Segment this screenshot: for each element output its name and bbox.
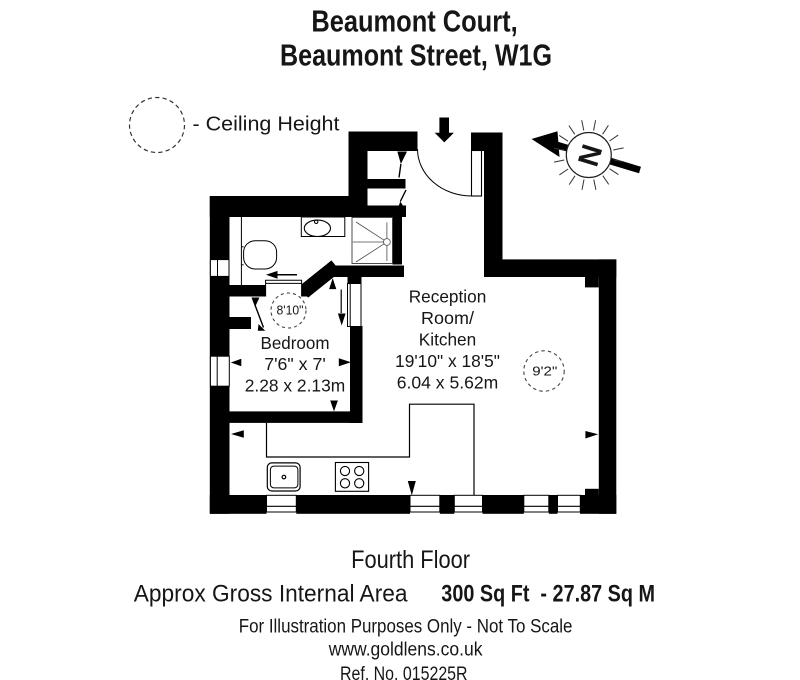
svg-text:For Illustration Purposes Only: For Illustration Purposes Only - Not To … xyxy=(239,616,573,637)
svg-text:Kitchen: Kitchen xyxy=(419,330,476,350)
svg-text:9'2": 9'2" xyxy=(532,365,557,379)
svg-text:2.28 x 2.13m: 2.28 x 2.13m xyxy=(245,376,346,396)
svg-text:300 Sq Ft - 27.87 Sq M: 300 Sq Ft - 27.87 Sq M xyxy=(441,581,655,608)
svg-text:Beaumont Court,: Beaumont Court, xyxy=(311,4,517,38)
svg-text:8'10": 8'10" xyxy=(277,304,304,318)
svg-text:www.goldlens.co.uk: www.goldlens.co.uk xyxy=(328,640,483,661)
svg-text:- Ceiling Height: - Ceiling Height xyxy=(193,113,340,135)
svg-text:Beaumont Street, W1G: Beaumont Street, W1G xyxy=(280,39,552,73)
svg-text:Bedroom: Bedroom xyxy=(261,333,330,353)
svg-text:Approx Gross Internal Area: Approx Gross Internal Area xyxy=(134,581,408,608)
svg-text:Ref. No. 015225R: Ref. No. 015225R xyxy=(340,664,468,680)
svg-text:7'6" x 7': 7'6" x 7' xyxy=(264,354,326,374)
svg-text:Reception: Reception xyxy=(409,287,487,307)
svg-text:6.04 x 5.62m: 6.04 x 5.62m xyxy=(397,373,498,393)
svg-text:Room/: Room/ xyxy=(421,308,474,328)
svg-text:19'10" x 18'5": 19'10" x 18'5" xyxy=(395,351,500,371)
svg-text:Fourth Floor: Fourth Floor xyxy=(351,546,470,574)
